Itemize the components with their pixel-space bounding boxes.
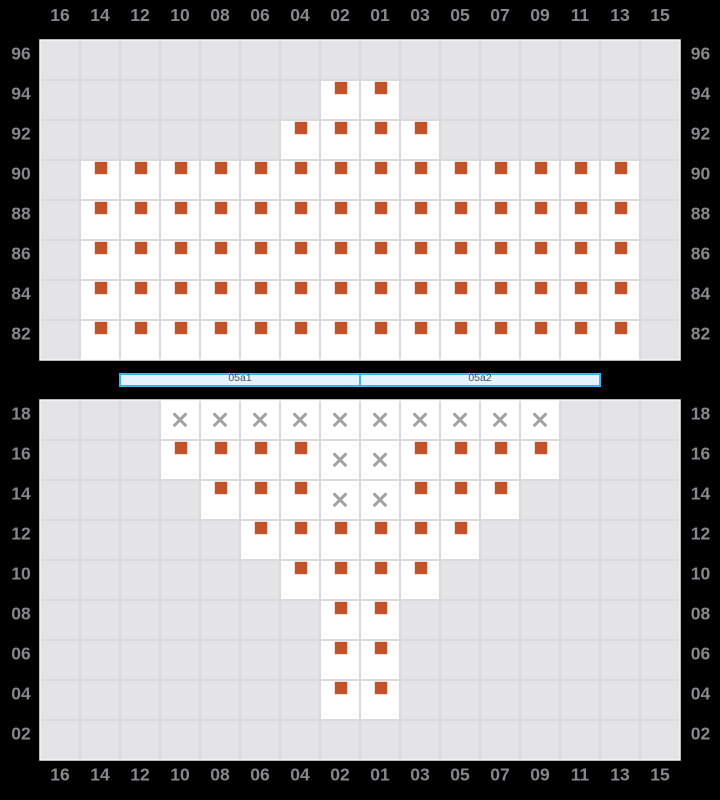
svg-text:06: 06 [250, 765, 270, 785]
svg-text:10: 10 [11, 564, 31, 584]
svg-text:15: 15 [650, 5, 670, 25]
svg-text:13: 13 [610, 5, 630, 25]
svg-text:07: 07 [490, 5, 509, 25]
svg-text:04: 04 [691, 684, 711, 704]
svg-text:08: 08 [691, 604, 711, 624]
svg-text:05: 05 [450, 765, 470, 785]
svg-text:92: 92 [691, 124, 711, 144]
svg-text:08: 08 [210, 5, 230, 25]
svg-text:86: 86 [691, 244, 711, 264]
svg-text:16: 16 [11, 444, 31, 464]
svg-text:03: 03 [410, 5, 430, 25]
svg-text:16: 16 [50, 765, 70, 785]
svg-text:04: 04 [290, 765, 310, 785]
svg-text:14: 14 [691, 484, 711, 504]
svg-text:94: 94 [691, 84, 711, 104]
svg-text:16: 16 [50, 5, 70, 25]
svg-text:12: 12 [130, 5, 150, 25]
svg-text:05: 05 [450, 5, 470, 25]
svg-text:14: 14 [90, 5, 110, 25]
svg-text:04: 04 [290, 5, 310, 25]
svg-text:12: 12 [130, 765, 150, 785]
svg-text:16: 16 [691, 444, 711, 464]
svg-text:92: 92 [11, 124, 31, 144]
svg-text:02: 02 [330, 5, 350, 25]
svg-text:09: 09 [530, 5, 550, 25]
svg-text:84: 84 [691, 284, 711, 304]
svg-text:84: 84 [11, 284, 31, 304]
svg-text:01: 01 [370, 5, 390, 25]
svg-text:02: 02 [11, 724, 31, 744]
svg-text:06: 06 [691, 644, 711, 664]
svg-text:03: 03 [410, 765, 430, 785]
svg-text:11: 11 [571, 765, 590, 785]
svg-text:07: 07 [490, 765, 509, 785]
svg-text:96: 96 [11, 44, 31, 64]
svg-text:13: 13 [610, 765, 630, 785]
svg-text:88: 88 [691, 204, 711, 224]
svg-text:09: 09 [530, 765, 550, 785]
svg-text:18: 18 [11, 404, 31, 424]
svg-text:14: 14 [90, 765, 110, 785]
svg-text:01: 01 [370, 765, 390, 785]
svg-text:90: 90 [691, 164, 711, 184]
svg-text:11: 11 [571, 5, 590, 25]
svg-text:08: 08 [210, 765, 230, 785]
svg-text:94: 94 [11, 84, 31, 104]
svg-text:05a2: 05a2 [468, 372, 492, 384]
svg-text:10: 10 [170, 5, 190, 25]
svg-text:18: 18 [691, 404, 711, 424]
svg-text:02: 02 [330, 765, 350, 785]
svg-text:12: 12 [691, 524, 711, 544]
svg-text:02: 02 [691, 724, 711, 744]
svg-text:06: 06 [250, 5, 270, 25]
svg-text:04: 04 [11, 684, 31, 704]
svg-text:12: 12 [11, 524, 31, 544]
svg-text:15: 15 [650, 765, 670, 785]
svg-text:96: 96 [691, 44, 711, 64]
svg-text:14: 14 [11, 484, 31, 504]
svg-text:10: 10 [170, 765, 190, 785]
svg-text:10: 10 [691, 564, 711, 584]
svg-text:82: 82 [11, 324, 31, 344]
svg-text:86: 86 [11, 244, 31, 264]
svg-text:08: 08 [11, 604, 31, 624]
svg-text:88: 88 [11, 204, 31, 224]
svg-text:82: 82 [691, 324, 711, 344]
svg-text:90: 90 [11, 164, 31, 184]
svg-text:06: 06 [11, 644, 31, 664]
svg-text:05a1: 05a1 [228, 372, 252, 384]
